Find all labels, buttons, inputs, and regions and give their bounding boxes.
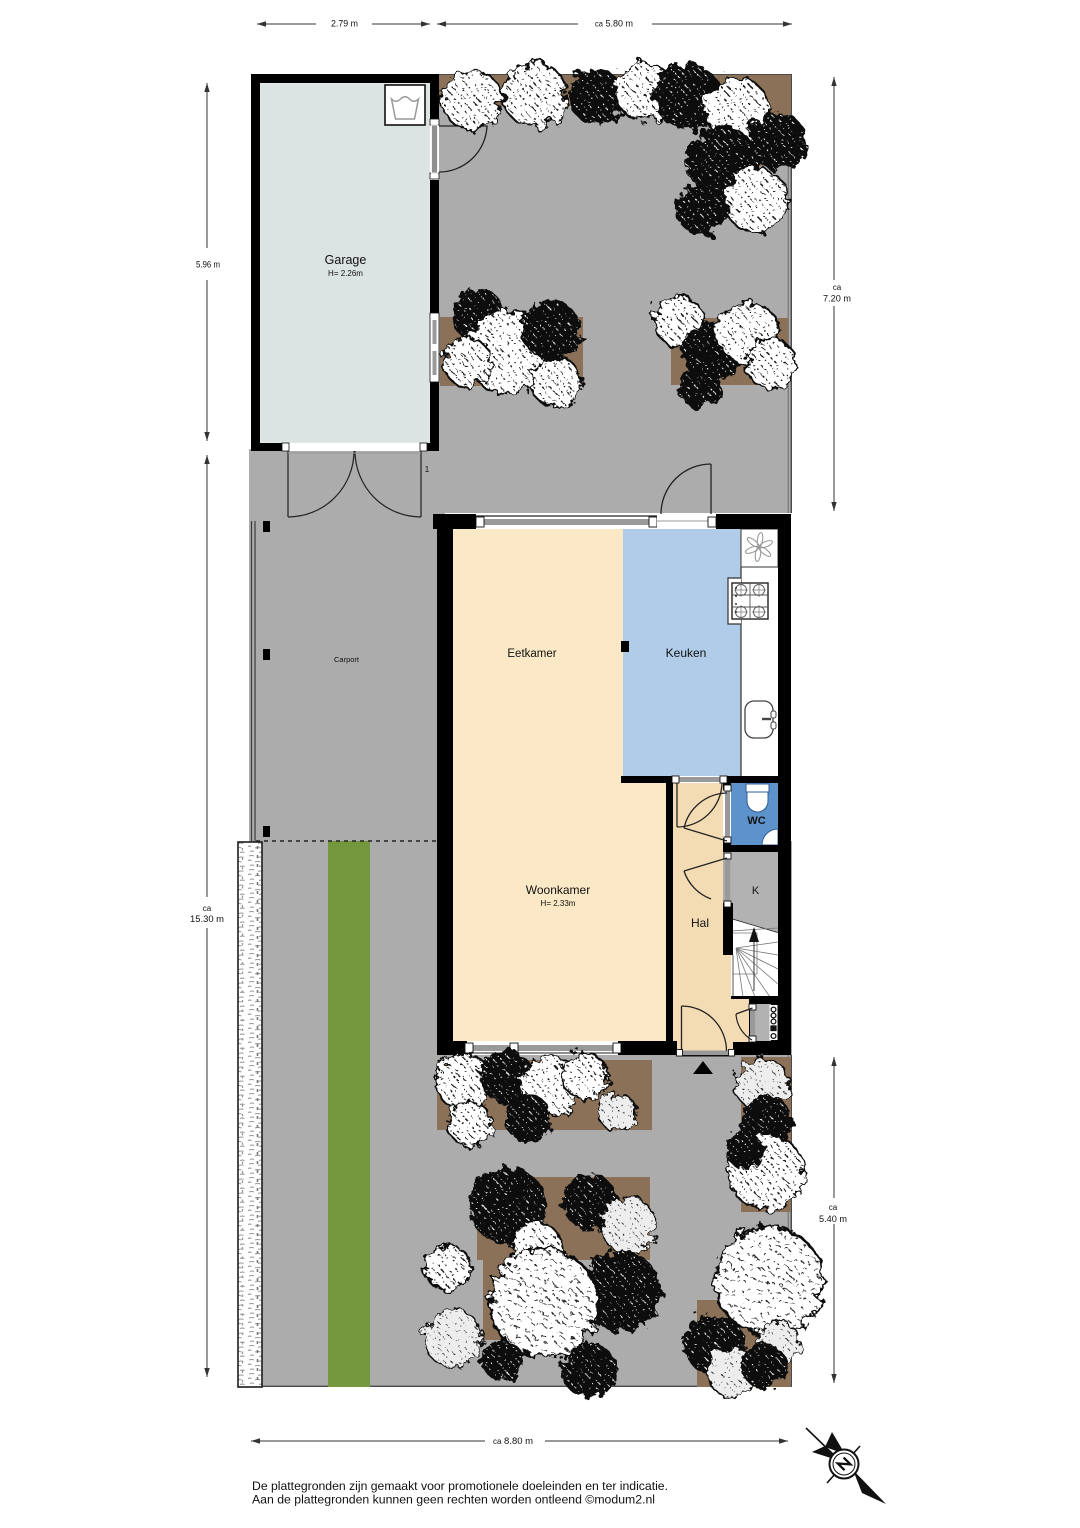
svg-text:ca: ca: [203, 904, 212, 913]
svg-text:Woonkamer: Woonkamer: [526, 883, 590, 897]
svg-text:5.96 m: 5.96 m: [196, 260, 220, 271]
svg-text:Garage: Garage: [325, 253, 367, 267]
svg-text:K: K: [752, 885, 760, 897]
svg-text:Carport: Carport: [334, 655, 360, 664]
svg-text:ca 8.80 m: ca 8.80 m: [493, 1436, 533, 1447]
svg-text:Keuken: Keuken: [666, 646, 707, 660]
svg-text:H= 2.26m: H= 2.26m: [328, 269, 363, 278]
svg-text:15.30 m: 15.30 m: [190, 914, 224, 925]
svg-text:Aan de plattegronden kunnen ge: Aan de plattegronden kunnen geen rechten…: [252, 1493, 655, 1507]
svg-text:2.79 m: 2.79 m: [331, 19, 358, 30]
svg-text:7.20 m: 7.20 m: [823, 294, 851, 305]
svg-text:Eetkamer: Eetkamer: [507, 648, 556, 660]
svg-text:ca: ca: [829, 1203, 838, 1212]
svg-text:1: 1: [425, 465, 430, 474]
svg-text:Hal: Hal: [691, 916, 709, 930]
svg-text:ca: ca: [833, 283, 842, 292]
svg-text:WC: WC: [747, 815, 765, 827]
svg-text:H= 2.33m: H= 2.33m: [541, 899, 576, 908]
svg-text:ca 5.80 m: ca 5.80 m: [595, 19, 633, 30]
svg-text:5.40 m: 5.40 m: [819, 1214, 847, 1225]
svg-text:De plattegronden zijn gemaakt: De plattegronden zijn gemaakt voor promo…: [252, 1479, 668, 1493]
